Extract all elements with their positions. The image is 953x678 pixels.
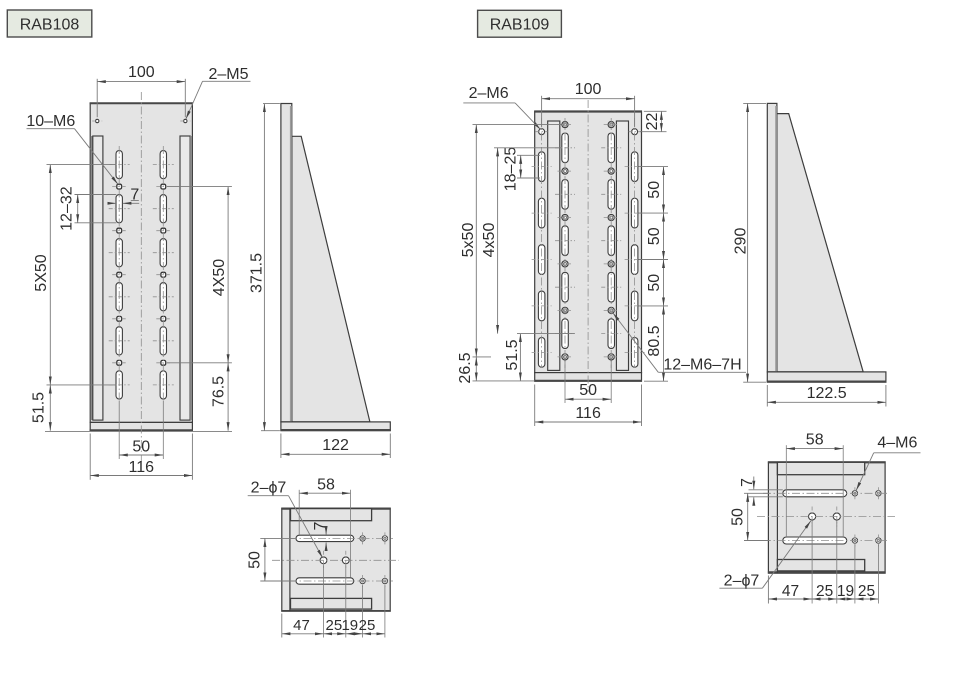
svg-text:2–ϕ7: 2–ϕ7 xyxy=(251,480,287,497)
svg-text:50: 50 xyxy=(246,551,263,569)
svg-text:122: 122 xyxy=(322,437,349,454)
svg-text:47: 47 xyxy=(293,617,310,634)
svg-text:25: 25 xyxy=(816,583,833,600)
svg-text:2–ϕ7: 2–ϕ7 xyxy=(724,573,760,590)
svg-text:50: 50 xyxy=(646,274,663,292)
svg-text:4–M6: 4–M6 xyxy=(877,435,917,452)
svg-text:47: 47 xyxy=(782,583,799,600)
svg-text:116: 116 xyxy=(575,405,601,422)
svg-text:58: 58 xyxy=(317,477,335,494)
svg-text:100: 100 xyxy=(128,64,155,81)
svg-text:50: 50 xyxy=(646,227,663,245)
svg-text:25: 25 xyxy=(359,617,376,634)
svg-text:50: 50 xyxy=(132,438,150,455)
svg-text:51.5: 51.5 xyxy=(504,339,521,370)
svg-text:371.5: 371.5 xyxy=(249,253,266,293)
svg-text:5X50: 5X50 xyxy=(33,254,50,291)
svg-text:51.5: 51.5 xyxy=(31,392,48,423)
svg-text:5x50: 5x50 xyxy=(460,223,477,258)
svg-text:10–M6: 10–M6 xyxy=(26,113,75,130)
svg-text:RAB108: RAB108 xyxy=(20,17,80,34)
svg-text:12–32: 12–32 xyxy=(59,186,76,231)
svg-text:22: 22 xyxy=(644,113,661,131)
svg-text:50: 50 xyxy=(646,181,663,199)
svg-text:4X50: 4X50 xyxy=(211,259,228,296)
svg-text:122.5: 122.5 xyxy=(807,385,847,402)
svg-text:4x50: 4x50 xyxy=(481,223,498,258)
svg-text:58: 58 xyxy=(806,432,824,449)
svg-text:116: 116 xyxy=(129,459,155,476)
svg-text:2–M5: 2–M5 xyxy=(208,66,248,83)
svg-text:25: 25 xyxy=(326,617,343,634)
svg-text:50: 50 xyxy=(730,508,747,526)
svg-text:2–M6: 2–M6 xyxy=(469,85,509,102)
svg-text:18–25: 18–25 xyxy=(503,147,520,192)
svg-text:19: 19 xyxy=(341,617,358,634)
svg-text:50: 50 xyxy=(579,382,597,399)
svg-text:19: 19 xyxy=(837,583,854,600)
svg-text:100: 100 xyxy=(575,81,602,98)
svg-text:12–M6–7H: 12–M6–7H xyxy=(663,357,741,374)
svg-text:RAB109: RAB109 xyxy=(490,17,550,34)
svg-text:76.5: 76.5 xyxy=(210,376,227,407)
svg-text:80.5: 80.5 xyxy=(646,325,663,356)
svg-text:26.5: 26.5 xyxy=(457,352,474,383)
svg-text:25: 25 xyxy=(858,583,875,600)
svg-text:290: 290 xyxy=(733,228,750,255)
